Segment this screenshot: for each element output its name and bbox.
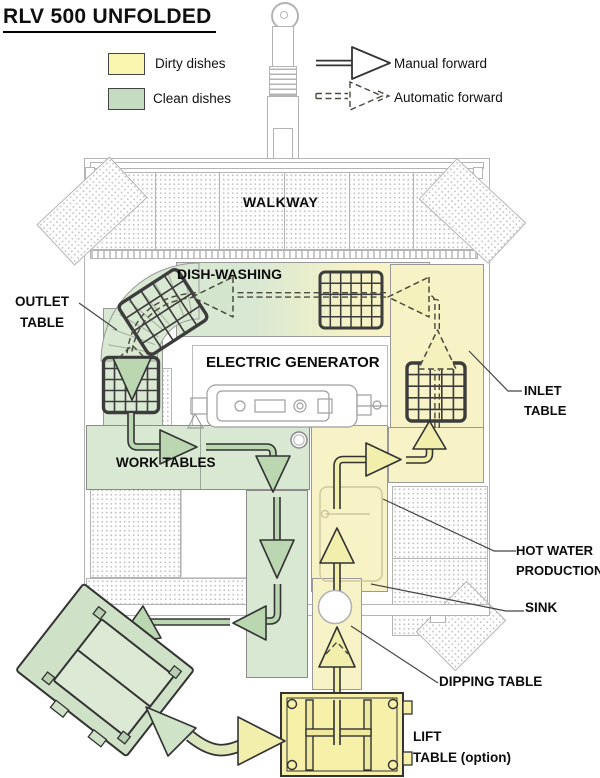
work-table-drain xyxy=(291,432,307,448)
manual-forward-label: Manual forward xyxy=(394,56,487,71)
clean-dishes-label: Clean dishes xyxy=(153,91,231,106)
lift-table xyxy=(281,693,412,776)
manual-forward-arrow-icon xyxy=(316,47,390,79)
table-exchange-arrow xyxy=(146,707,285,765)
outlet-table-label: OUTLET TABLE xyxy=(4,292,80,334)
dashed-arrowhead-up xyxy=(419,330,457,369)
hot-water-production-label: HOT WATER PRODUCTION xyxy=(516,541,600,581)
dish-basket-inlet-table xyxy=(407,363,465,421)
automatic-forward-arrow-icon xyxy=(316,82,389,110)
lift-table-label-line1: LIFT xyxy=(413,729,442,744)
sink-leader xyxy=(371,584,524,611)
inlet-table-leader xyxy=(469,351,522,391)
sink-hole xyxy=(319,591,352,624)
automatic-forward-label: Automatic forward xyxy=(394,90,503,105)
outlet-table-label-line2: TABLE xyxy=(20,315,64,330)
inlet-table-label: INLET TABLE xyxy=(524,381,566,421)
hot-water-machine xyxy=(320,487,382,581)
dirty-dishes-swatch xyxy=(108,53,145,75)
dashed-arrowhead-left-dirty xyxy=(388,277,429,317)
inlet-table-label-line1: INLET xyxy=(524,383,562,398)
dipping-table-label: DIPPING TABLE xyxy=(439,675,542,689)
dish-basket-washer xyxy=(320,272,382,328)
dipping-table-leader xyxy=(351,626,438,683)
hot-water-label-line2: PRODUCTION xyxy=(516,563,600,578)
dirty-dishes-label: Dirty dishes xyxy=(155,56,226,71)
diagram-canvas: RLV 500 UNFOLDED Dirty dishes Clean dish… xyxy=(0,0,600,778)
page-title: RLV 500 UNFOLDED xyxy=(3,5,216,33)
dish-washing-label: DISH-WASHING xyxy=(177,267,282,281)
flow-overlay xyxy=(0,0,600,778)
lift-table-label-line2: TABLE (option) xyxy=(413,750,511,765)
electric-generator-machine xyxy=(188,385,388,428)
sink-label: SINK xyxy=(525,601,557,615)
inlet-table-label-line2: TABLE xyxy=(524,403,566,418)
lift-table-label: LIFT TABLE (option) xyxy=(413,727,511,769)
outlet-table-label-line1: OUTLET xyxy=(15,294,69,309)
clean-dishes-swatch xyxy=(108,88,145,110)
electric-generator-label: ELECTRIC GENERATOR xyxy=(206,355,380,370)
work-tables-label: WORK TABLES xyxy=(116,456,216,470)
hot-water-label-line1: HOT WATER xyxy=(516,543,593,558)
hot-water-leader xyxy=(383,499,516,551)
walkway-label: WALKWAY xyxy=(243,195,318,209)
